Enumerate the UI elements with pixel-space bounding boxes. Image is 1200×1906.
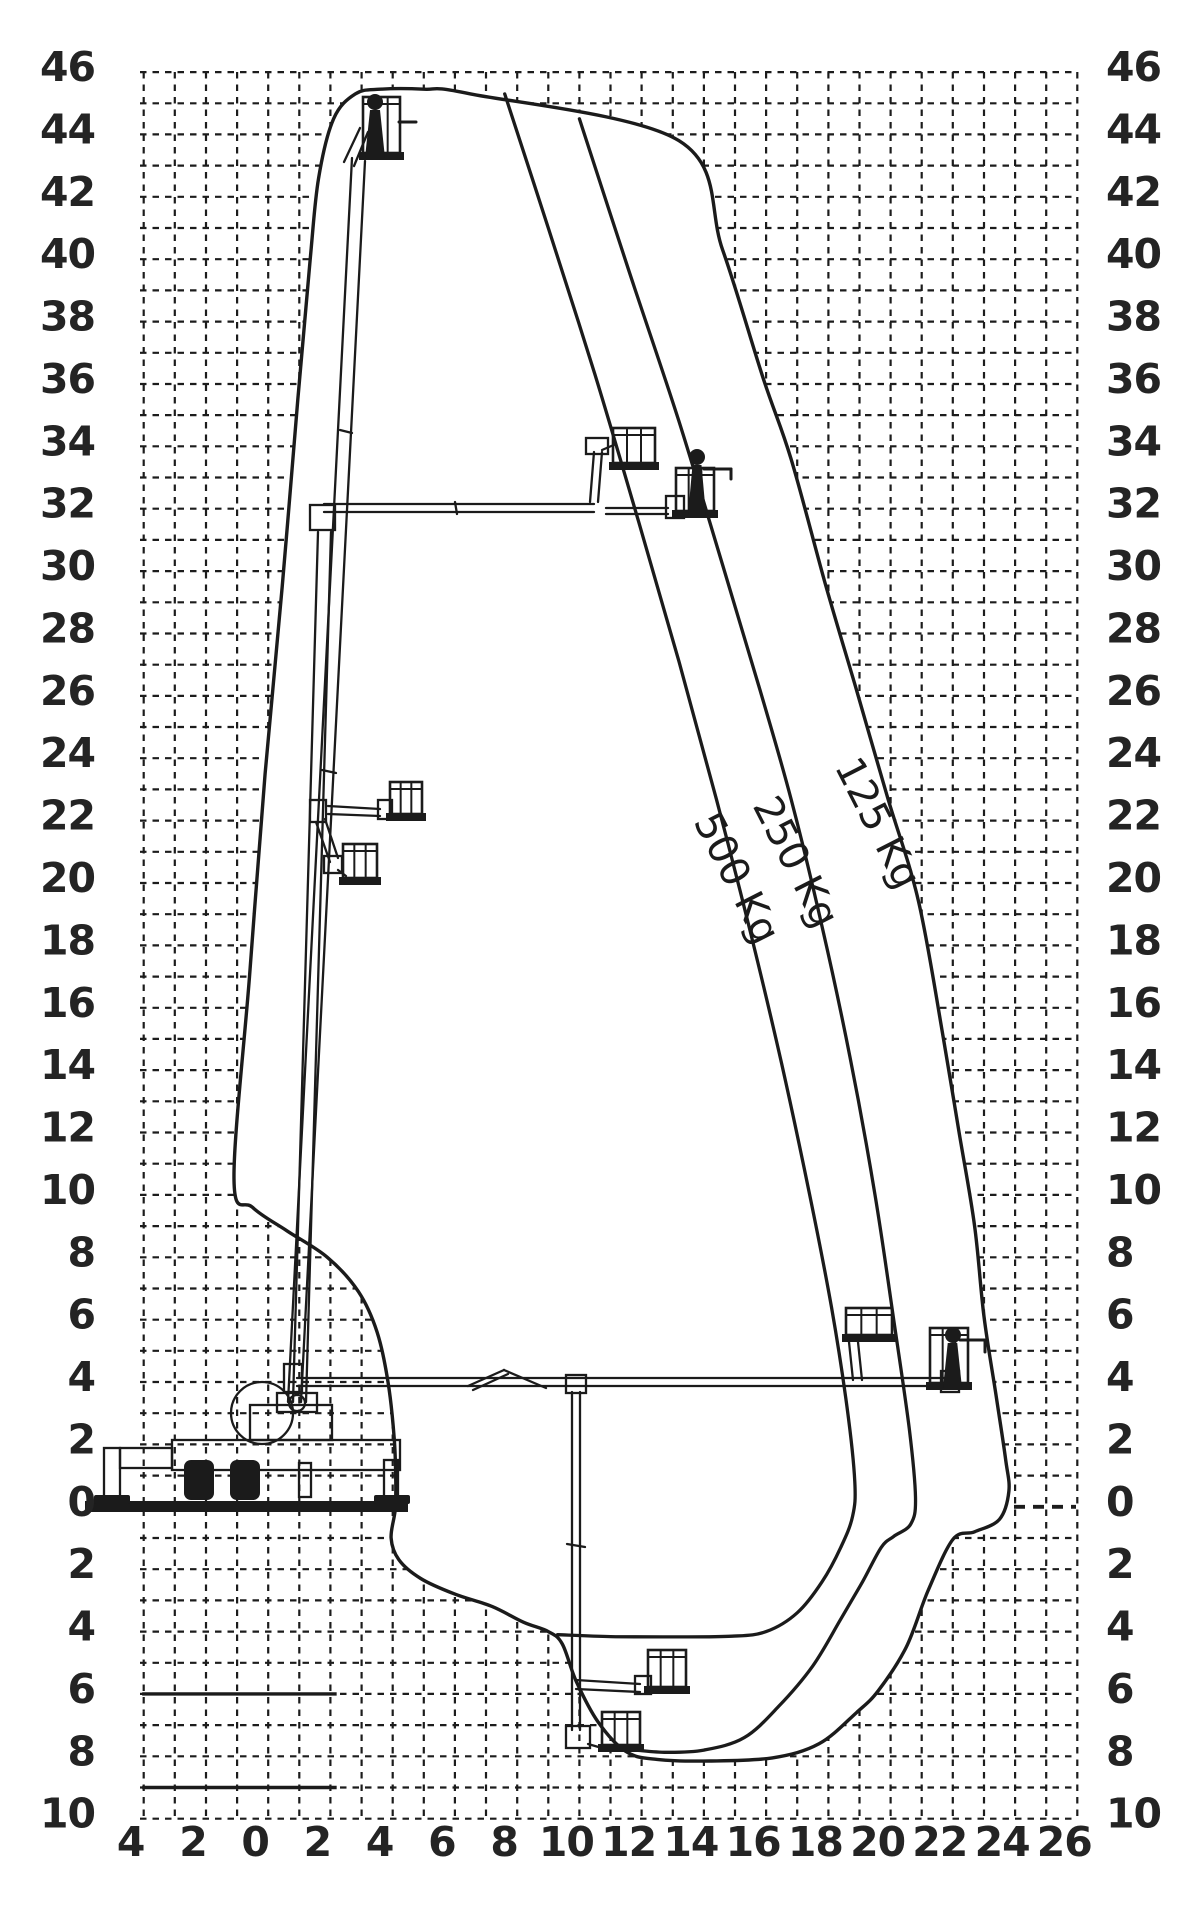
y-axis-tick-right: 30	[1106, 542, 1161, 590]
y-axis-tick-right: 44	[1106, 105, 1161, 153]
x-axis-tick: 6	[428, 1818, 456, 1866]
y-axis-tick-left: 42	[40, 168, 95, 216]
y-axis-tick-left: 26	[40, 667, 95, 715]
y-axis-tick-right: 10	[1106, 1790, 1161, 1838]
y-axis-tick-right: 14	[1106, 1041, 1161, 1089]
y-axis-tick-left: 28	[40, 605, 95, 653]
y-axis-tick-left: 40	[40, 230, 95, 278]
x-axis-tick: 20	[850, 1818, 905, 1866]
y-axis-tick-left: 20	[40, 854, 95, 902]
x-axis-tick: 16	[726, 1818, 781, 1866]
y-axis-tick-right: 34	[1106, 417, 1161, 465]
y-axis-tick-left: 10	[40, 1790, 95, 1838]
y-axis-tick-right: 10	[1106, 1166, 1161, 1214]
x-axis-tick: 12	[601, 1818, 656, 1866]
y-axis-tick-left: 44	[40, 105, 95, 153]
x-axis-tick: 2	[304, 1818, 332, 1866]
envelope-chart: 500 Kg250 Kg125 Kg4646444442424040383836…	[0, 0, 1200, 1906]
x-axis-tick: 8	[490, 1818, 518, 1866]
y-axis-tick-left: 8	[67, 1228, 95, 1276]
y-axis-tick-left: 18	[40, 916, 95, 964]
y-axis-tick-left: 36	[40, 355, 95, 403]
y-axis-tick-right: 22	[1106, 792, 1161, 840]
y-axis-tick-right: 18	[1106, 916, 1161, 964]
y-axis-tick-right: 12	[1106, 1104, 1161, 1152]
y-axis-tick-right: 16	[1106, 979, 1161, 1027]
x-axis-tick: 4	[117, 1818, 145, 1866]
y-axis-tick-right: 26	[1106, 667, 1161, 715]
y-axis-tick-left: 6	[67, 1665, 95, 1713]
y-axis-tick-right: 46	[1106, 43, 1161, 91]
x-axis-tick: 22	[912, 1818, 967, 1866]
y-axis-tick-right: 36	[1106, 355, 1161, 403]
x-axis-tick: 26	[1037, 1818, 1092, 1866]
y-axis-tick-right: 6	[1106, 1665, 1134, 1713]
y-axis-tick-right: 28	[1106, 605, 1161, 653]
y-axis-tick-right: 4	[1106, 1603, 1134, 1651]
y-axis-tick-left: 4	[67, 1353, 95, 1401]
y-axis-tick-right: 0	[1106, 1478, 1134, 1526]
ground-line	[85, 1501, 408, 1512]
y-axis-tick-right: 2	[1106, 1415, 1134, 1463]
x-axis-tick: 4	[366, 1818, 394, 1866]
y-axis-tick-left: 16	[40, 979, 95, 1027]
x-axis-tick: 10	[539, 1818, 594, 1866]
y-axis-tick-left: 4	[67, 1603, 95, 1651]
y-axis-tick-right: 38	[1106, 293, 1161, 341]
x-axis-tick: 14	[663, 1818, 718, 1866]
y-axis-tick-right: 24	[1106, 729, 1161, 777]
y-axis-tick-left: 22	[40, 792, 95, 840]
y-axis-tick-right: 20	[1106, 854, 1161, 902]
y-axis-tick-right: 40	[1106, 230, 1161, 278]
y-axis-tick-left: 30	[40, 542, 95, 590]
y-axis-tick-right: 2	[1106, 1540, 1134, 1588]
x-axis-tick: 18	[788, 1818, 843, 1866]
y-axis-tick-left: 14	[40, 1041, 95, 1089]
x-axis-tick: 24	[975, 1818, 1030, 1866]
y-axis-tick-right: 6	[1106, 1291, 1134, 1339]
y-axis-tick-left: 2	[67, 1540, 95, 1588]
y-axis-tick-right: 42	[1106, 168, 1161, 216]
y-axis-tick-left: 34	[40, 417, 95, 465]
x-axis-tick: 2	[179, 1818, 207, 1866]
working-envelope-figure: 500 Kg250 Kg125 Kg4646444442424040383836…	[0, 0, 1200, 1906]
y-axis-tick-left: 12	[40, 1104, 95, 1152]
y-axis-tick-right: 4	[1106, 1353, 1134, 1401]
y-axis-tick-left: 46	[40, 43, 95, 91]
y-axis-tick-left: 2	[67, 1415, 95, 1463]
y-axis-tick-right: 8	[1106, 1727, 1134, 1775]
y-axis-tick-left: 0	[67, 1478, 95, 1526]
y-axis-tick-left: 38	[40, 293, 95, 341]
y-axis-tick-left: 10	[40, 1166, 95, 1214]
y-axis-tick-left: 24	[40, 729, 95, 777]
y-axis-tick-left: 6	[67, 1291, 95, 1339]
y-axis-tick-left: 8	[67, 1727, 95, 1775]
y-axis-tick-left: 32	[40, 480, 95, 528]
y-axis-tick-right: 8	[1106, 1228, 1134, 1276]
y-axis-tick-right: 32	[1106, 480, 1161, 528]
x-axis-tick: 0	[241, 1818, 269, 1866]
